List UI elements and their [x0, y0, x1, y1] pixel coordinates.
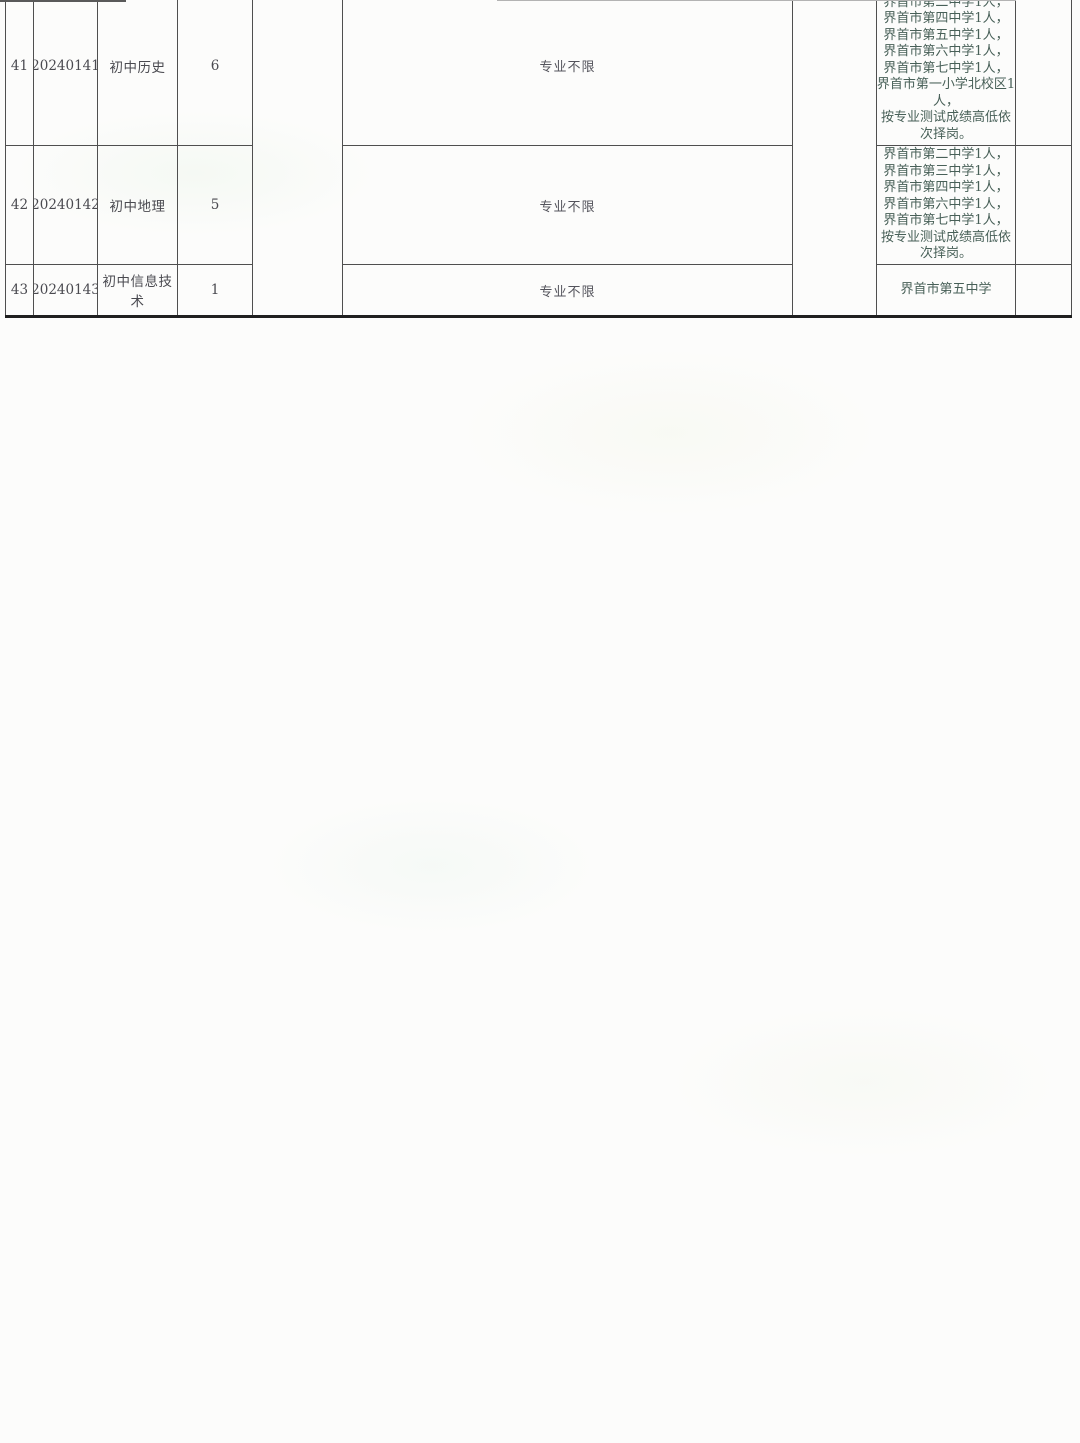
row42-school-assignment: 界首市第二中学1人，界首市第三中学1人，界首市第四中学1人，界首市第六中学1人，…	[877, 146, 1016, 265]
row43-code: 20240143	[34, 265, 98, 315]
row42-code: 20240142	[34, 146, 98, 265]
row41-seq: 41	[5, 0, 34, 146]
row41-school-assignment: 界首市第二中学1人，界首市第四中学1人，界首市第五中学1人，界首市第六中学1人，…	[877, 0, 1016, 146]
merged-empty-column-right	[793, 0, 877, 315]
table-top-border-fragment	[0, 0, 126, 2]
row43-subject: 初中信息技术	[98, 265, 178, 315]
row41-code: 20240141	[34, 0, 98, 146]
row43-openings: 1	[178, 265, 253, 315]
row42-openings: 5	[178, 146, 253, 265]
row43-major-requirement: 专业不限	[343, 265, 793, 315]
row41-openings: 6	[178, 0, 253, 146]
row43-school-assignment: 界首市第五中学	[877, 265, 1016, 315]
row41-remark	[1016, 0, 1072, 146]
row43-remark	[1016, 265, 1072, 315]
recruitment-table: 41 20240141 初中历史 6 专业不限 界首市第二中学1人，界首市第四中…	[5, 0, 1072, 318]
row43-seq: 43	[5, 265, 34, 315]
row42-remark	[1016, 146, 1072, 265]
row41-major-requirement: 专业不限	[343, 0, 793, 146]
row42-major-requirement: 专业不限	[343, 146, 793, 265]
merged-empty-column-left	[253, 0, 343, 315]
row42-subject: 初中地理	[98, 146, 178, 265]
table-top-border-fragment	[497, 0, 1016, 1]
row42-seq: 42	[5, 146, 34, 265]
row41-subject: 初中历史	[98, 0, 178, 146]
